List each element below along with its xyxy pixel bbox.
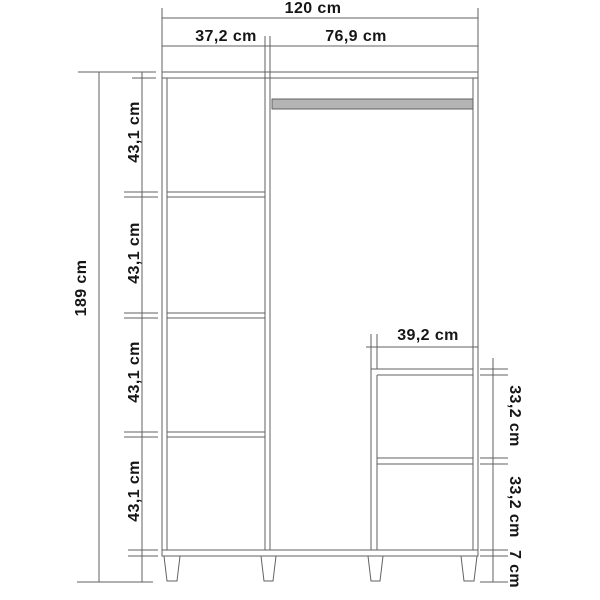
- wardrobe-leg-1: [164, 556, 180, 581]
- wardrobe-technical-drawing: 120 cm 37,2 cm 76,9 cm 189 cm 43,1 cm 43…: [0, 0, 600, 600]
- label-compartment-3-height: 43,1 cm: [126, 341, 143, 403]
- label-right-section-width: 76,9 cm: [325, 28, 387, 45]
- wardrobe-leg-2: [261, 556, 276, 581]
- label-total-width: 120 cm: [285, 0, 342, 17]
- label-total-height: 189 cm: [73, 260, 90, 317]
- diagram-canvas: 120 cm 37,2 cm 76,9 cm 189 cm 43,1 cm 43…: [0, 0, 600, 600]
- label-compartment-4-height: 43,1 cm: [126, 460, 143, 522]
- wardrobe-leg-3: [368, 556, 383, 581]
- carcass-panels: [162, 72, 478, 556]
- label-left-section-width: 37,2 cm: [195, 28, 257, 45]
- lower-cabinet-panels: [371, 369, 473, 550]
- label-leg-height: 7 cm: [506, 550, 523, 588]
- label-compartment-2-height: 43,1 cm: [126, 222, 143, 284]
- label-lower-cabinet-width: 39,2 cm: [397, 327, 459, 344]
- hanging-rail: [272, 99, 473, 109]
- label-lower-cabinet-upper-height: 33,2 cm: [506, 385, 523, 447]
- dimension-labels: 120 cm 37,2 cm 76,9 cm 189 cm 43,1 cm 43…: [73, 0, 523, 588]
- wardrobe-leg-4: [461, 556, 477, 581]
- label-compartment-1-height: 43,1 cm: [126, 101, 143, 163]
- label-lower-cabinet-lower-height: 33,2 cm: [506, 476, 523, 538]
